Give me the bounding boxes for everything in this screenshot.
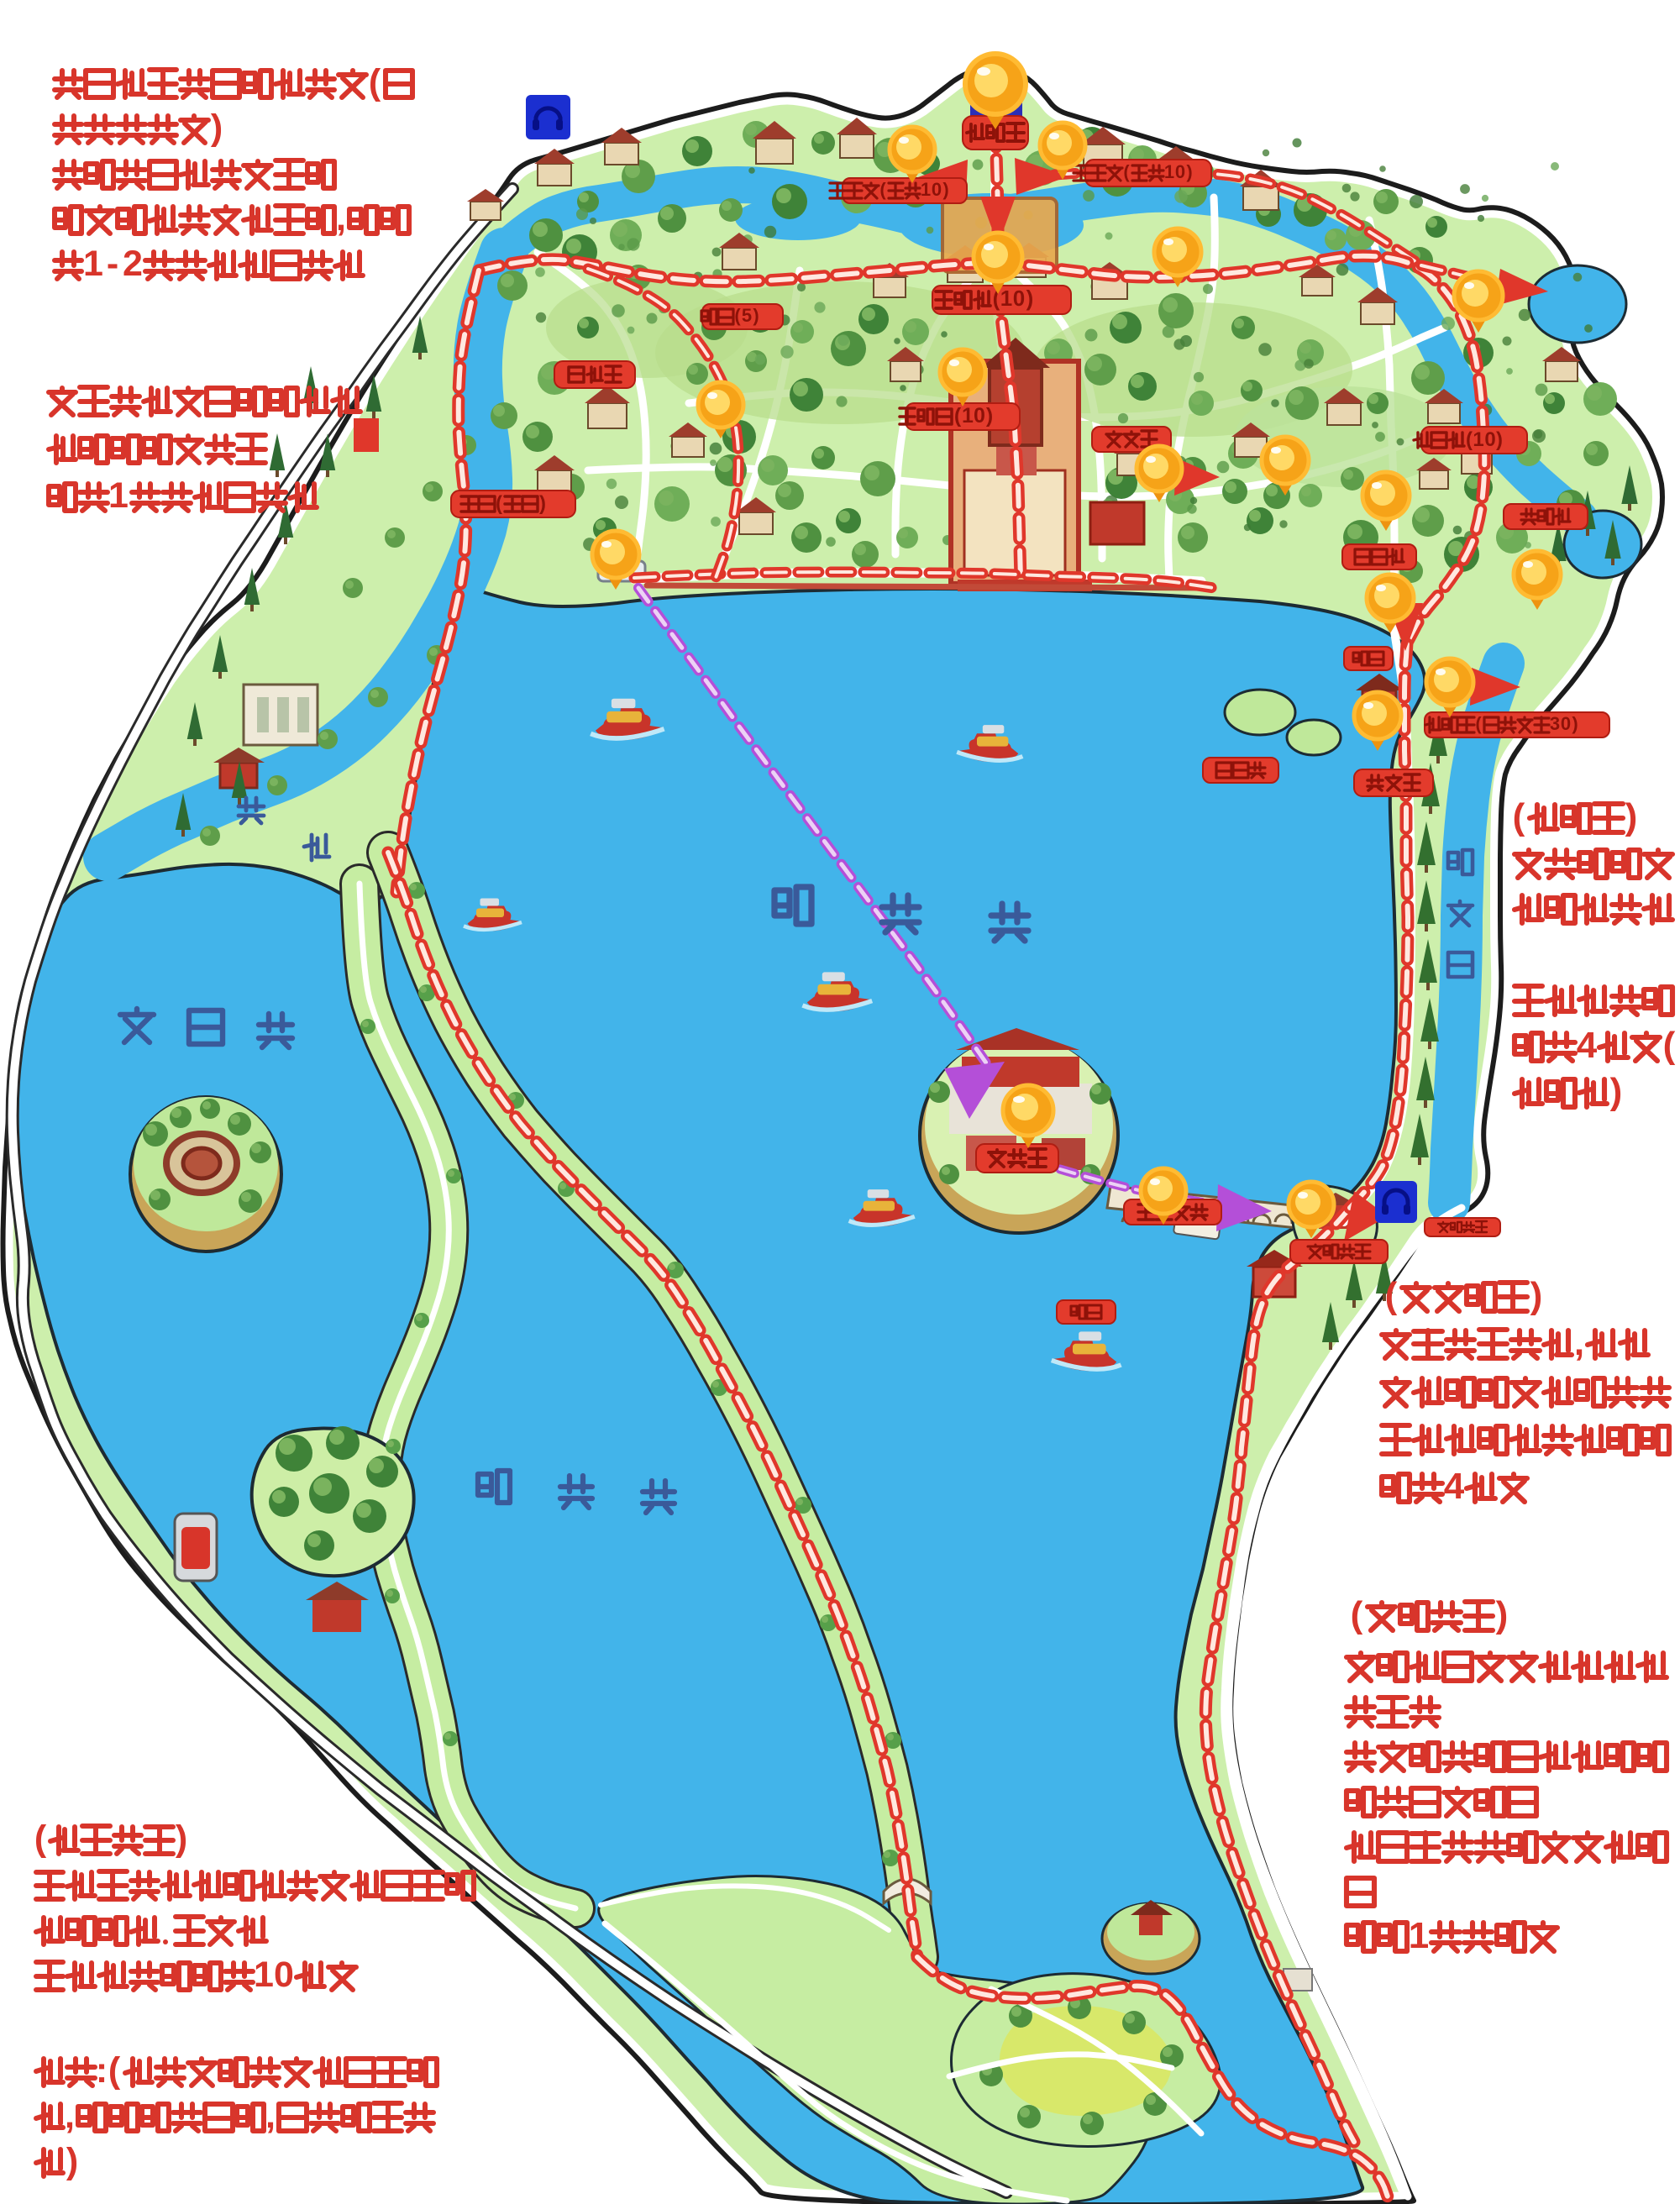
- svg-text:): ): [176, 1818, 187, 1859]
- svg-text:4: 4: [1577, 1025, 1598, 1066]
- svg-text:5: 5: [742, 305, 752, 326]
- svg-text:(: (: [1475, 713, 1482, 734]
- svg-text:1: 1: [1409, 1915, 1429, 1956]
- svg-text:1: 1: [921, 179, 931, 200]
- svg-text:(: (: [879, 179, 886, 200]
- svg-text:): ): [1496, 428, 1503, 451]
- svg-text:(: (: [1663, 1025, 1676, 1066]
- svg-text::: :: [96, 2050, 108, 2091]
- svg-text:): ): [66, 2141, 78, 2181]
- svg-text:): ): [539, 492, 546, 515]
- svg-text:(: (: [108, 2050, 121, 2091]
- svg-text:0: 0: [1561, 713, 1571, 734]
- svg-text:0: 0: [974, 404, 985, 428]
- svg-text:(: (: [496, 492, 502, 515]
- svg-text:): ): [1610, 1071, 1623, 1112]
- svg-text:(: (: [369, 62, 381, 102]
- svg-text:,: ,: [265, 2096, 276, 2136]
- svg-text:1: 1: [962, 404, 974, 428]
- svg-text:): ): [1572, 713, 1578, 734]
- svg-text:3: 3: [1550, 713, 1560, 734]
- svg-text:-: -: [107, 244, 118, 284]
- svg-text:(: (: [954, 404, 962, 428]
- svg-text:(: (: [1466, 428, 1473, 451]
- svg-text:): ): [1186, 161, 1192, 182]
- svg-text:0: 0: [1484, 428, 1495, 451]
- svg-text:1: 1: [1164, 161, 1174, 182]
- svg-text:1: 1: [1473, 428, 1483, 451]
- svg-text:1: 1: [83, 244, 103, 284]
- svg-text:(: (: [734, 305, 741, 326]
- svg-text:(: (: [1123, 161, 1130, 182]
- svg-text:): ): [986, 404, 993, 428]
- svg-text:1: 1: [108, 475, 129, 516]
- svg-text:): ): [942, 179, 948, 200]
- svg-text:1: 1: [1000, 286, 1012, 311]
- svg-text:(: (: [1513, 796, 1525, 837]
- svg-text:0: 0: [932, 179, 942, 200]
- svg-text:(: (: [1351, 1594, 1363, 1635]
- svg-text:,: ,: [1574, 1322, 1584, 1363]
- svg-text:0: 0: [1013, 286, 1025, 311]
- svg-text:4: 4: [1444, 1466, 1465, 1507]
- svg-text:0: 0: [274, 1955, 294, 1995]
- svg-text:,: ,: [336, 198, 346, 239]
- svg-text:): ): [753, 305, 759, 326]
- svg-text:): ): [1026, 286, 1034, 311]
- svg-text:): ): [1496, 1594, 1509, 1635]
- svg-text:): ): [1530, 1275, 1543, 1316]
- svg-text:1: 1: [254, 1955, 274, 1995]
- svg-text:0: 0: [1175, 161, 1185, 182]
- svg-text:,: ,: [65, 2096, 75, 2136]
- svg-text:): ): [1625, 796, 1638, 837]
- svg-text:): ): [211, 108, 223, 148]
- svg-text:(: (: [34, 1818, 47, 1859]
- svg-text:2: 2: [123, 244, 143, 284]
- svg-text:(: (: [1385, 1275, 1398, 1316]
